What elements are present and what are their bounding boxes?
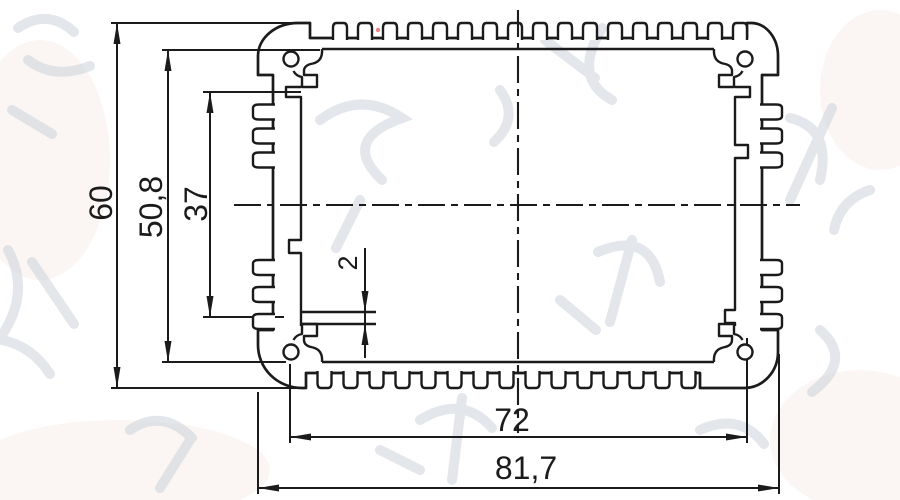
boss-top-right bbox=[714, 49, 753, 87]
dimension-lines bbox=[111, 23, 779, 494]
label-overall-height: 60 bbox=[83, 185, 119, 221]
right-inner-wall bbox=[725, 87, 750, 326]
label-slot-width: 2 bbox=[333, 255, 363, 270]
label-overall-width: 81,7 bbox=[495, 450, 557, 486]
red-scan-mark bbox=[376, 28, 380, 32]
watermark bbox=[2, 19, 870, 488]
dimension-arrows bbox=[114, 23, 780, 492]
boss-bottom-left bbox=[284, 324, 323, 362]
label-inner-height: 50,8 bbox=[133, 176, 169, 238]
extrusion-profile-drawing: 60 50,8 37 2 72 81,7 bbox=[0, 0, 900, 500]
label-inner-width: 72 bbox=[494, 402, 530, 438]
left-inner-wall bbox=[286, 87, 301, 326]
bottom-fins bbox=[318, 371, 696, 388]
top-fins bbox=[333, 23, 747, 40]
technical-drawing-page: 60 50,8 37 2 72 81,7 bbox=[0, 0, 900, 500]
center-lines bbox=[234, 10, 800, 433]
boss-top-left bbox=[284, 49, 323, 87]
label-fin-zone-height: 37 bbox=[178, 186, 214, 222]
